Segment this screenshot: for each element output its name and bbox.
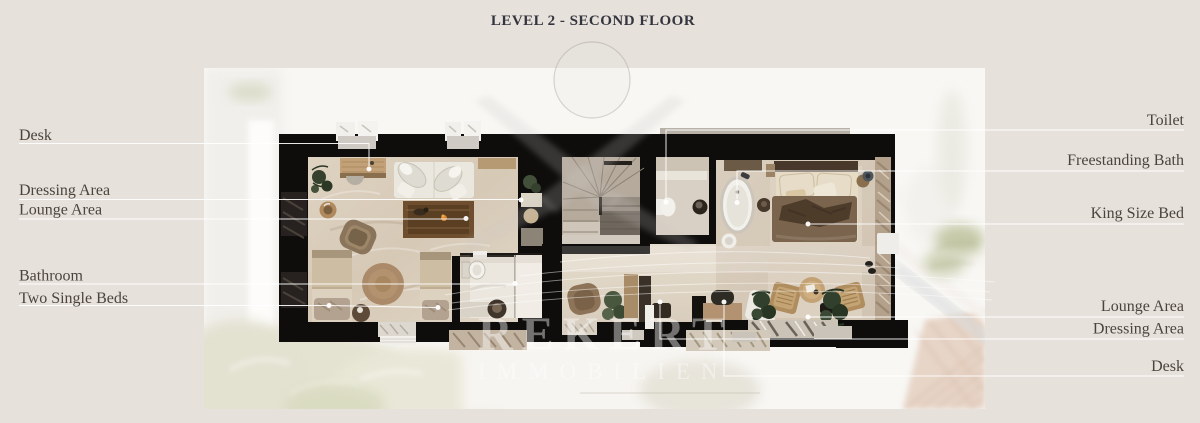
svg-text:Freestanding Bath: Freestanding Bath: [1067, 152, 1184, 169]
svg-text:Toilet: Toilet: [1147, 112, 1185, 129]
svg-text:King Size Bed: King Size Bed: [1091, 205, 1184, 222]
svg-text:Lounge Area: Lounge Area: [1101, 298, 1184, 315]
svg-text:Two Single Beds: Two Single Beds: [19, 290, 128, 307]
svg-text:Desk: Desk: [19, 127, 52, 144]
svg-text:LEVEL 2 - SECOND FLOOR: LEVEL 2 - SECOND FLOOR: [491, 13, 695, 29]
svg-text:IMMOBILIEN: IMMOBILIEN: [478, 359, 729, 384]
svg-text:Lounge Area: Lounge Area: [19, 202, 102, 219]
svg-text:Desk: Desk: [1151, 358, 1184, 375]
svg-text:Bathroom: Bathroom: [19, 268, 84, 285]
svg-text:REKERT: REKERT: [478, 308, 733, 361]
svg-text:Dressing Area: Dressing Area: [19, 182, 110, 199]
svg-text:Dressing Area: Dressing Area: [1093, 321, 1184, 338]
